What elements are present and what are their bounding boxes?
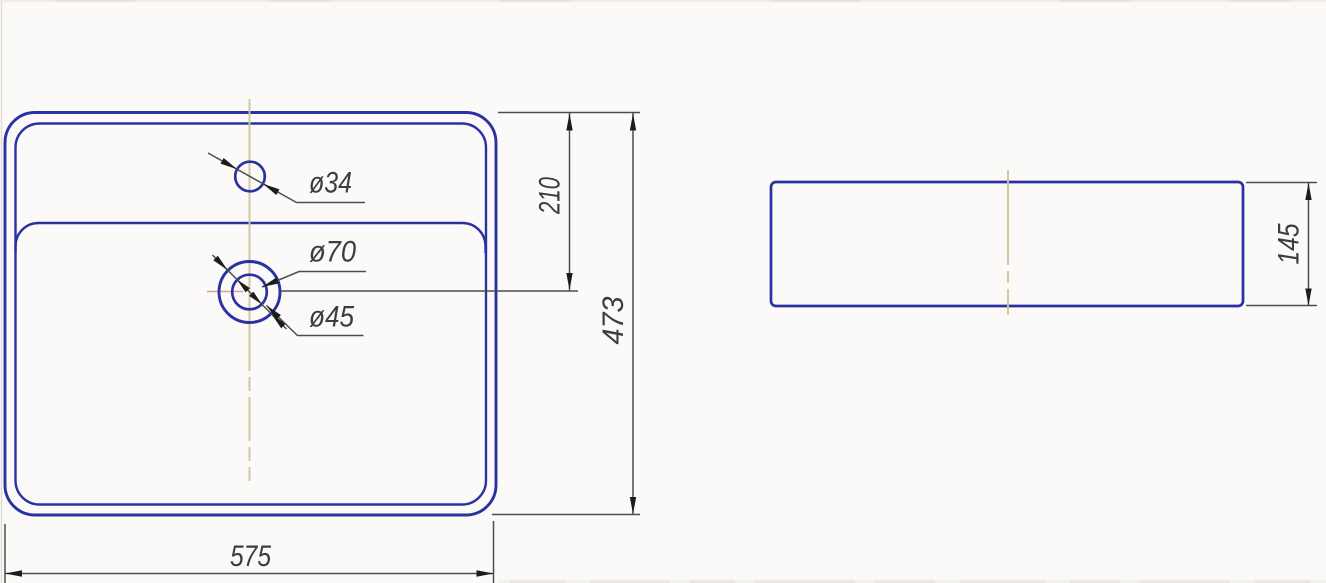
svg-text:575: 575: [230, 540, 271, 573]
svg-text:ø34: ø34: [309, 167, 352, 200]
svg-text:473: 473: [597, 296, 630, 344]
svg-text:145: 145: [1273, 223, 1306, 264]
svg-text:ø45: ø45: [309, 301, 354, 334]
svg-text:ø70: ø70: [309, 236, 356, 269]
svg-text:210: 210: [534, 177, 567, 215]
